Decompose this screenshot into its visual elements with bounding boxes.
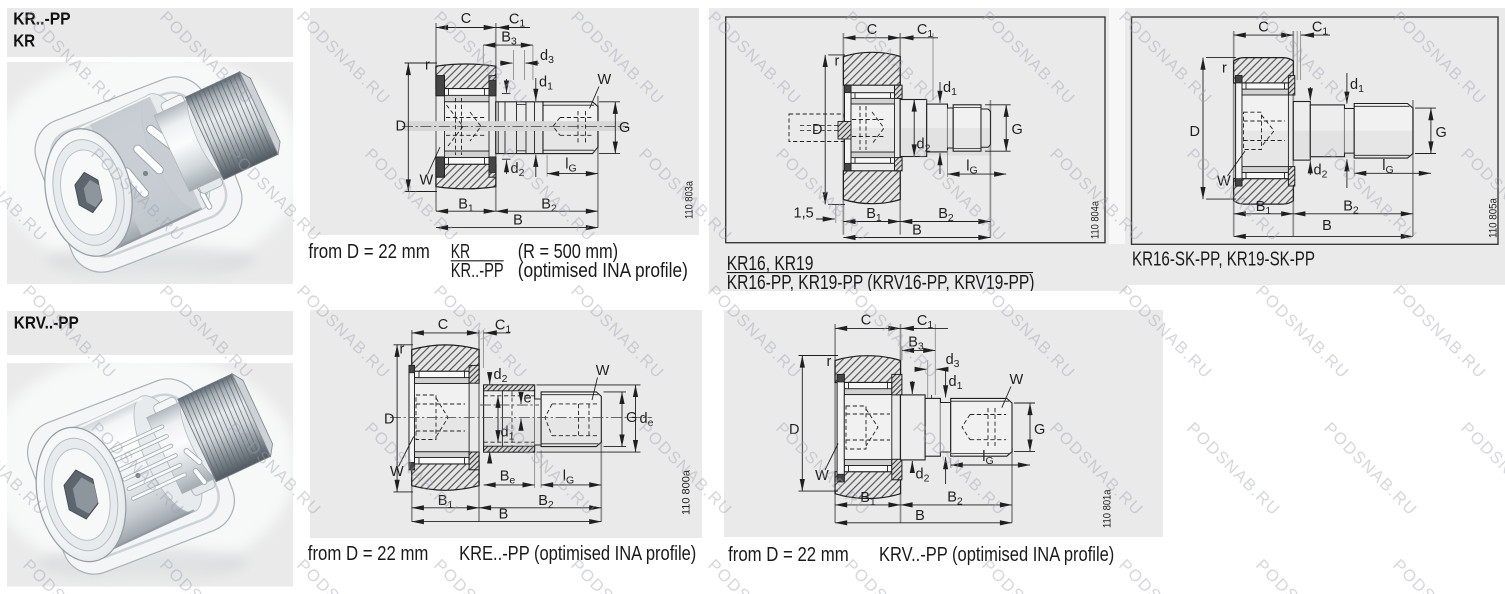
svg-text:PODSNAB.RU: PODSNAB.RU bbox=[978, 556, 1078, 594]
svg-text:PODSNAB.RU: PODSNAB.RU bbox=[841, 282, 941, 382]
svg-text:PODSNAB.RU: PODSNAB.RU bbox=[1389, 8, 1489, 108]
svg-text:PODSNAB.RU: PODSNAB.RU bbox=[87, 419, 187, 519]
svg-text:PODSNAB.RU: PODSNAB.RU bbox=[293, 8, 393, 108]
svg-text:PODSNAB.RU: PODSNAB.RU bbox=[772, 145, 872, 245]
svg-text:PODSNAB.RU: PODSNAB.RU bbox=[0, 419, 51, 519]
svg-text:PODSNAB.RU: PODSNAB.RU bbox=[772, 419, 872, 519]
svg-text:PODSNAB.RU: PODSNAB.RU bbox=[361, 419, 461, 519]
svg-text:PODSNAB.RU: PODSNAB.RU bbox=[156, 556, 256, 594]
svg-text:PODSNAB.RU: PODSNAB.RU bbox=[361, 145, 461, 245]
svg-text:PODSNAB.RU: PODSNAB.RU bbox=[909, 419, 1009, 519]
svg-text:PODSNAB.RU: PODSNAB.RU bbox=[1183, 419, 1283, 519]
svg-text:PODSNAB.RU: PODSNAB.RU bbox=[19, 8, 119, 108]
svg-text:PODSNAB.RU: PODSNAB.RU bbox=[1115, 556, 1215, 594]
svg-text:PODSNAB.RU: PODSNAB.RU bbox=[293, 282, 393, 382]
svg-text:PODSNAB.RU: PODSNAB.RU bbox=[978, 282, 1078, 382]
svg-text:PODSNAB.RU: PODSNAB.RU bbox=[1252, 556, 1352, 594]
svg-text:PODSNAB.RU: PODSNAB.RU bbox=[224, 419, 324, 519]
svg-text:PODSNAB.RU: PODSNAB.RU bbox=[1320, 145, 1420, 245]
svg-text:PODSNAB.RU: PODSNAB.RU bbox=[978, 8, 1078, 108]
svg-text:PODSNAB.RU: PODSNAB.RU bbox=[1457, 419, 1505, 519]
svg-text:PODSNAB.RU: PODSNAB.RU bbox=[87, 145, 187, 245]
svg-text:PODSNAB.RU: PODSNAB.RU bbox=[567, 8, 667, 108]
svg-text:PODSNAB.RU: PODSNAB.RU bbox=[156, 282, 256, 382]
svg-text:PODSNAB.RU: PODSNAB.RU bbox=[1389, 556, 1489, 594]
svg-text:PODSNAB.RU: PODSNAB.RU bbox=[1457, 145, 1505, 245]
svg-text:PODSNAB.RU: PODSNAB.RU bbox=[498, 145, 598, 245]
svg-text:PODSNAB.RU: PODSNAB.RU bbox=[635, 419, 735, 519]
svg-text:PODSNAB.RU: PODSNAB.RU bbox=[0, 145, 51, 245]
svg-text:PODSNAB.RU: PODSNAB.RU bbox=[430, 556, 530, 594]
svg-text:PODSNAB.RU: PODSNAB.RU bbox=[156, 8, 256, 108]
svg-text:PODSNAB.RU: PODSNAB.RU bbox=[1252, 282, 1352, 382]
svg-text:PODSNAB.RU: PODSNAB.RU bbox=[635, 145, 735, 245]
svg-text:PODSNAB.RU: PODSNAB.RU bbox=[224, 145, 324, 245]
svg-text:PODSNAB.RU: PODSNAB.RU bbox=[1046, 145, 1146, 245]
svg-text:PODSNAB.RU: PODSNAB.RU bbox=[704, 556, 804, 594]
svg-text:PODSNAB.RU: PODSNAB.RU bbox=[1115, 282, 1215, 382]
svg-text:PODSNAB.RU: PODSNAB.RU bbox=[909, 145, 1009, 245]
svg-text:PODSNAB.RU: PODSNAB.RU bbox=[1183, 145, 1283, 245]
svg-text:PODSNAB.RU: PODSNAB.RU bbox=[1389, 282, 1489, 382]
svg-text:PODSNAB.RU: PODSNAB.RU bbox=[841, 556, 941, 594]
svg-text:PODSNAB.RU: PODSNAB.RU bbox=[430, 8, 530, 108]
svg-text:PODSNAB.RU: PODSNAB.RU bbox=[430, 282, 530, 382]
svg-text:PODSNAB.RU: PODSNAB.RU bbox=[841, 8, 941, 108]
svg-text:PODSNAB.RU: PODSNAB.RU bbox=[704, 8, 804, 108]
svg-text:PODSNAB.RU: PODSNAB.RU bbox=[567, 282, 667, 382]
svg-text:PODSNAB.RU: PODSNAB.RU bbox=[1252, 8, 1352, 108]
svg-text:PODSNAB.RU: PODSNAB.RU bbox=[704, 282, 804, 382]
svg-text:PODSNAB.RU: PODSNAB.RU bbox=[1320, 419, 1420, 519]
svg-text:PODSNAB.RU: PODSNAB.RU bbox=[1046, 419, 1146, 519]
svg-text:PODSNAB.RU: PODSNAB.RU bbox=[19, 556, 119, 594]
svg-text:PODSNAB.RU: PODSNAB.RU bbox=[293, 556, 393, 594]
svg-text:PODSNAB.RU: PODSNAB.RU bbox=[19, 282, 119, 382]
svg-text:PODSNAB.RU: PODSNAB.RU bbox=[498, 419, 598, 519]
svg-text:PODSNAB.RU: PODSNAB.RU bbox=[567, 556, 667, 594]
svg-text:PODSNAB.RU: PODSNAB.RU bbox=[1115, 8, 1215, 108]
